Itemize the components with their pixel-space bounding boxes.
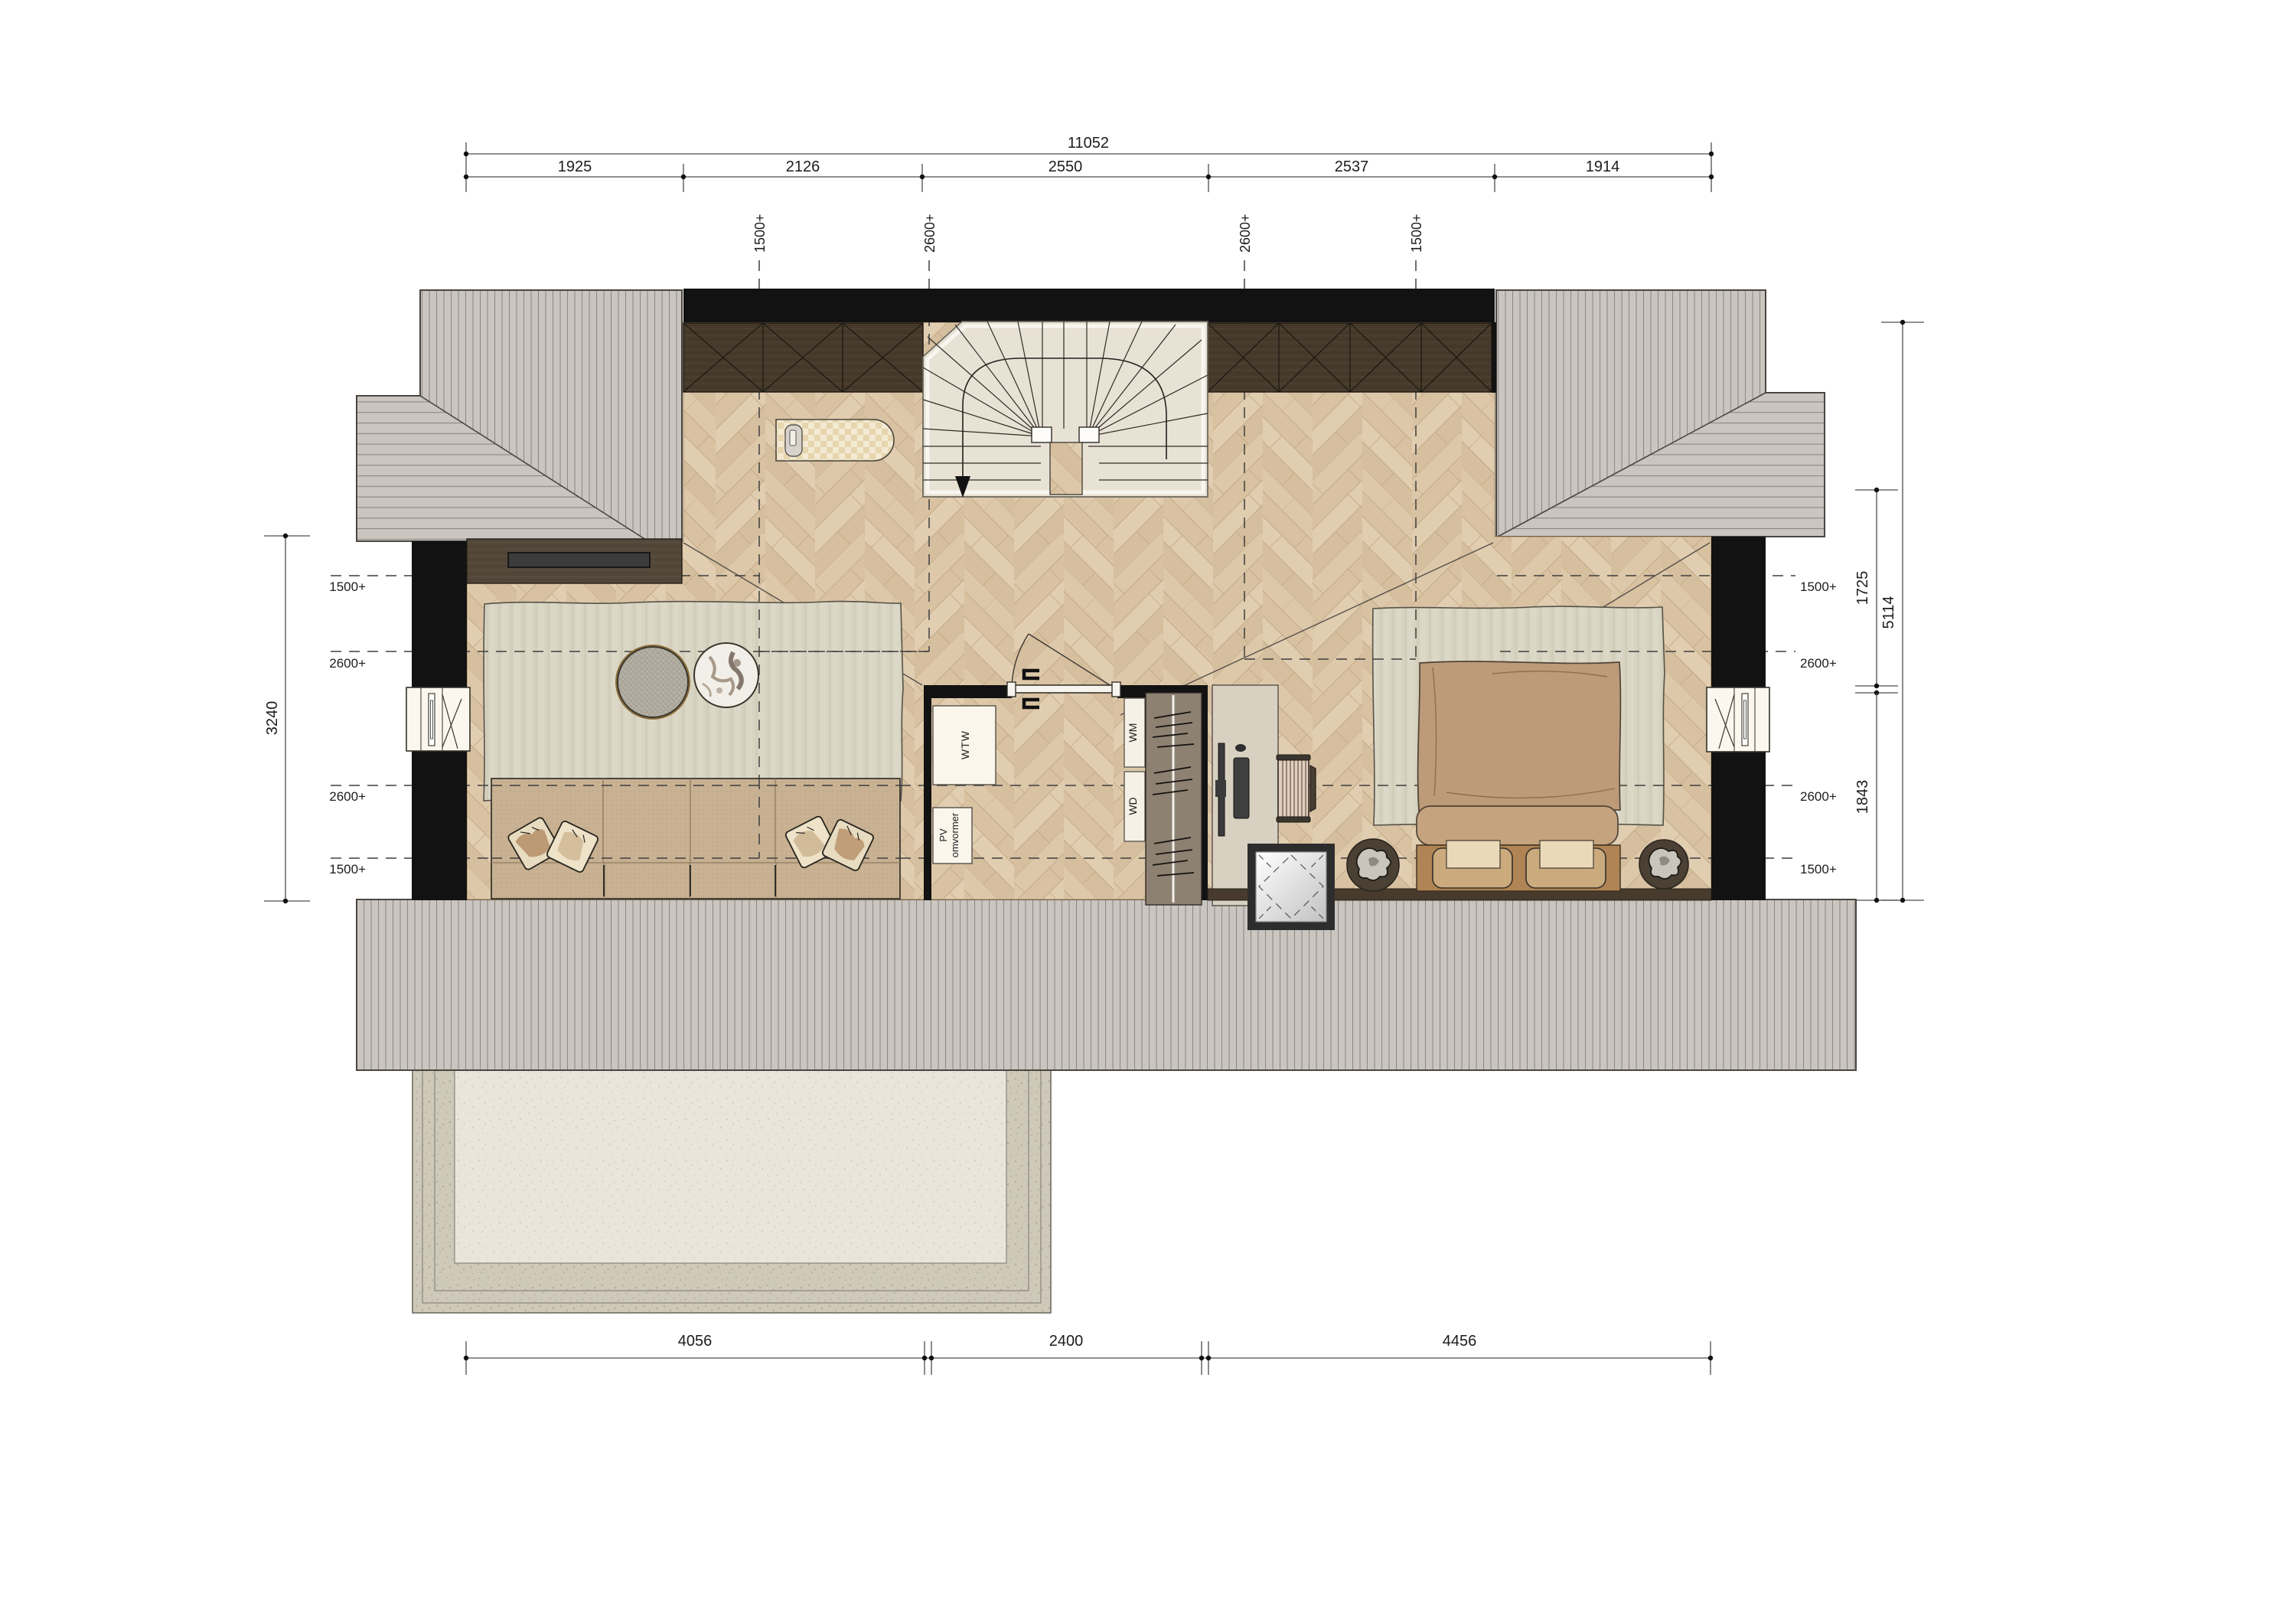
svg-text:omvormer: omvormer [949, 812, 960, 857]
svg-text:2126: 2126 [786, 158, 820, 175]
svg-text:1843: 1843 [1854, 780, 1871, 815]
svg-text:2400: 2400 [1049, 1333, 1084, 1350]
svg-text:5114: 5114 [1880, 596, 1897, 628]
svg-text:WTW: WTW [959, 730, 971, 759]
svg-text:2600+: 2600+ [329, 789, 366, 804]
svg-text:1500+: 1500+ [1800, 862, 1837, 877]
svg-text:2600+: 2600+ [1800, 656, 1837, 671]
svg-text:2600+: 2600+ [1238, 214, 1253, 253]
svg-text:1725: 1725 [1854, 571, 1871, 606]
svg-text:1500+: 1500+ [329, 862, 366, 877]
svg-text:1500+: 1500+ [1409, 214, 1424, 253]
svg-text:1500+: 1500+ [1800, 579, 1837, 594]
svg-text:1500+: 1500+ [752, 214, 768, 253]
svg-text:PV: PV [938, 828, 949, 842]
svg-text:WM: WM [1127, 723, 1139, 743]
svg-text:2600+: 2600+ [1800, 789, 1837, 804]
svg-text:WD: WD [1127, 797, 1139, 815]
svg-text:2600+: 2600+ [922, 214, 938, 253]
svg-text:2600+: 2600+ [329, 656, 366, 671]
svg-text:4456: 4456 [1443, 1333, 1477, 1350]
svg-text:1914: 1914 [1586, 158, 1620, 175]
svg-text:1500+: 1500+ [329, 579, 366, 594]
svg-text:2537: 2537 [1335, 158, 1369, 175]
svg-text:1925: 1925 [558, 158, 592, 175]
svg-text:4056: 4056 [678, 1333, 713, 1350]
svg-text:3240: 3240 [264, 701, 281, 736]
svg-text:2550: 2550 [1049, 158, 1083, 175]
svg-text:11052: 11052 [1068, 135, 1109, 152]
